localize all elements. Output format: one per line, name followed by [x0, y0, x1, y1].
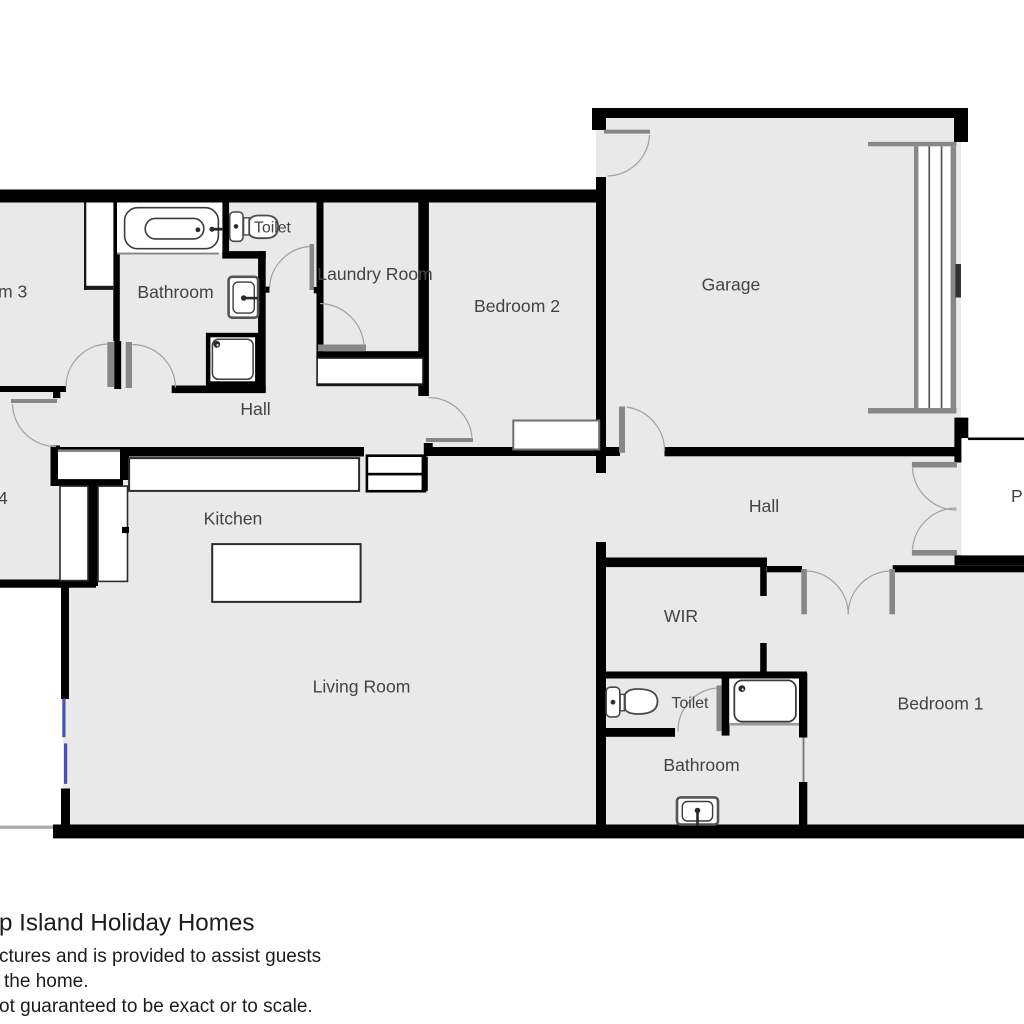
svg-text:Hall: Hall [240, 399, 270, 419]
svg-text:Laundry Room: Laundry Room [317, 264, 432, 284]
svg-text:the home.: the home. [4, 971, 89, 992]
svg-text:P: P [1011, 486, 1023, 506]
svg-text:Bathroom: Bathroom [663, 755, 739, 775]
svg-text:Living Room: Living Room [313, 677, 411, 697]
svg-text:Bedroom 1: Bedroom 1 [897, 694, 983, 714]
svg-text:p Island Holiday Homes: p Island Holiday Homes [0, 910, 254, 937]
svg-text:Garage: Garage [702, 275, 761, 295]
svg-text:Hall: Hall [749, 496, 779, 516]
svg-text:4: 4 [0, 488, 8, 508]
svg-text:ctures and is provided to assi: ctures and is provided to assist guests [0, 946, 321, 967]
svg-text:ot guaranteed to be exact or t: ot guaranteed to be exact or to scale. [0, 996, 313, 1017]
svg-text:Bathroom: Bathroom [137, 282, 213, 302]
svg-text:Toilet: Toilet [254, 220, 291, 237]
svg-text:WIR: WIR [664, 606, 698, 626]
svg-text:Bedroom 2: Bedroom 2 [474, 296, 560, 316]
svg-text:Toilet: Toilet [672, 695, 709, 712]
svg-text:m 3: m 3 [0, 282, 28, 302]
svg-text:Kitchen: Kitchen [204, 509, 263, 529]
